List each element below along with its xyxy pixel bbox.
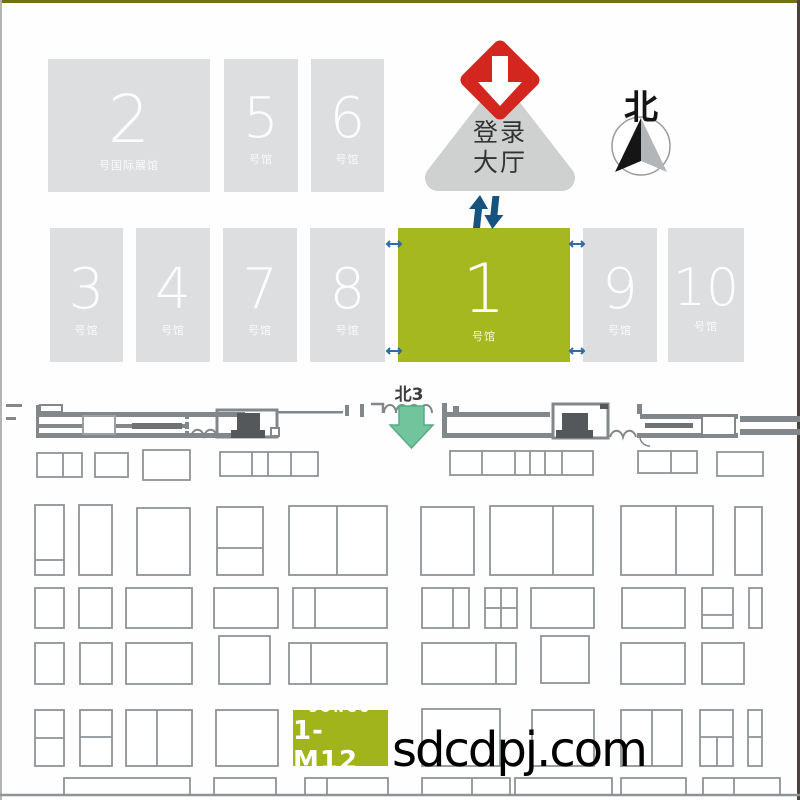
service-booth-row — [37, 450, 763, 480]
booth-code: 1-M12 — [293, 716, 388, 776]
booth-brand-logo: SONGU — [309, 701, 372, 715]
hall-door-icons — [387, 241, 584, 354]
exhibition-map: 2 号国际展馆 5 号馆 6 号馆 3 号馆 4 号馆 7 号馆 8 号馆 1 … — [0, 0, 800, 800]
north-label: 北 — [608, 80, 674, 129]
registration-hall-line1: 登录 — [440, 118, 560, 148]
watermark-text: sdcdpj.com — [392, 722, 646, 778]
entrance-arrow-icon — [458, 38, 543, 123]
registration-hall-label: 登录 大厅 — [440, 118, 560, 178]
gate-north3-label: 北3 — [386, 380, 432, 405]
registration-hall-line2: 大厅 — [440, 148, 560, 178]
top-landmarks-canvas — [0, 0, 800, 390]
booth-1-M12[interactable]: SONGU 1-M12 — [293, 710, 388, 766]
escalator-icon — [467, 195, 506, 229]
